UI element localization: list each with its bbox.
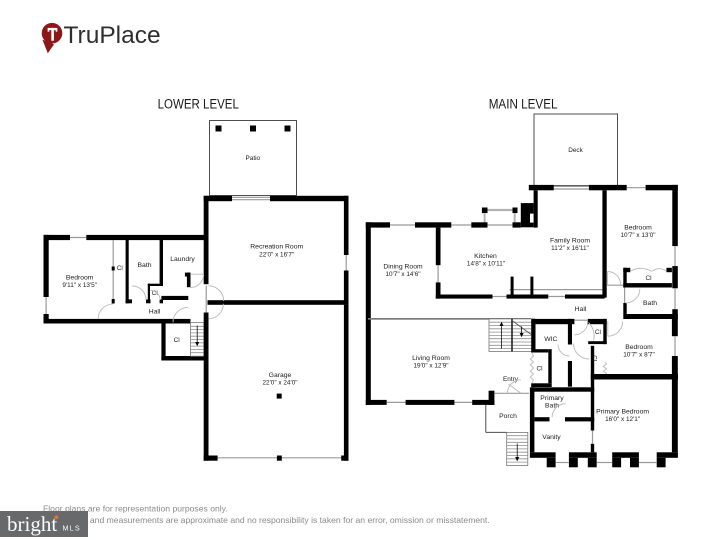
svg-text:Family Room: Family Room bbox=[550, 238, 590, 245]
svg-text:22'0" x 16'7": 22'0" x 16'7" bbox=[259, 252, 294, 259]
svg-text:TruPlace: TruPlace bbox=[64, 22, 161, 49]
svg-text:16'0" x 12'1": 16'0" x 12'1" bbox=[605, 416, 640, 423]
svg-text:10'7" x 13'0": 10'7" x 13'0" bbox=[620, 232, 655, 239]
svg-text:Bath: Bath bbox=[643, 300, 657, 307]
svg-text:Deck: Deck bbox=[568, 147, 583, 154]
svg-text:19'0" x 12'9": 19'0" x 12'9" bbox=[413, 362, 448, 369]
svg-text:Bedroom: Bedroom bbox=[66, 274, 94, 281]
svg-text:Bedroom: Bedroom bbox=[624, 225, 652, 232]
svg-text:Living Room: Living Room bbox=[412, 355, 450, 362]
svg-text:Cl: Cl bbox=[117, 265, 123, 272]
svg-text:LOWER LEVEL: LOWER LEVEL bbox=[158, 97, 239, 113]
svg-text:Primary Bedroom: Primary Bedroom bbox=[596, 409, 649, 416]
svg-text:MLS: MLS bbox=[63, 524, 81, 533]
svg-text:Hall: Hall bbox=[149, 309, 161, 316]
svg-text:Cl: Cl bbox=[645, 275, 651, 282]
svg-text:WIC: WIC bbox=[544, 336, 557, 343]
svg-text:Patio: Patio bbox=[246, 155, 261, 162]
svg-text:Kitchen: Kitchen bbox=[474, 253, 497, 260]
svg-text:All sizes and measurements are: All sizes and measurements are approxima… bbox=[56, 515, 490, 525]
svg-text:Hall: Hall bbox=[575, 306, 587, 313]
svg-text:Bath: Bath bbox=[545, 403, 559, 410]
svg-text:22'0" x 24'0": 22'0" x 24'0" bbox=[262, 380, 297, 387]
svg-text:Vanity: Vanity bbox=[542, 434, 561, 441]
svg-text:Dining Room: Dining Room bbox=[383, 264, 423, 271]
svg-text:14'8" x 10'11": 14'8" x 10'11" bbox=[467, 260, 505, 267]
svg-text:Recreation Room: Recreation Room bbox=[250, 244, 303, 251]
svg-text:Garage: Garage bbox=[269, 372, 292, 379]
svg-text:Bath: Bath bbox=[138, 262, 152, 269]
svg-text:11'2" x 16'11": 11'2" x 16'11" bbox=[551, 245, 589, 252]
svg-text:Cl: Cl bbox=[536, 366, 542, 373]
svg-text:bright: bright bbox=[7, 512, 57, 536]
svg-text:Cl: Cl bbox=[591, 355, 598, 361]
svg-text:Cl: Cl bbox=[595, 329, 601, 336]
svg-text:MAIN LEVEL: MAIN LEVEL bbox=[489, 97, 558, 113]
svg-text:Entry: Entry bbox=[503, 376, 519, 383]
svg-text:Primary: Primary bbox=[540, 395, 564, 402]
svg-text:Porch: Porch bbox=[499, 413, 517, 420]
svg-text:9'11" x 13'5": 9'11" x 13'5" bbox=[62, 282, 97, 289]
svg-text:Laundry: Laundry bbox=[170, 256, 195, 263]
svg-text:10'7" x 14'6": 10'7" x 14'6" bbox=[385, 271, 420, 278]
svg-text:10'7" x 8'7": 10'7" x 8'7" bbox=[623, 351, 655, 358]
svg-text:Bedroom: Bedroom bbox=[625, 344, 653, 351]
svg-text:Cl: Cl bbox=[174, 337, 180, 344]
